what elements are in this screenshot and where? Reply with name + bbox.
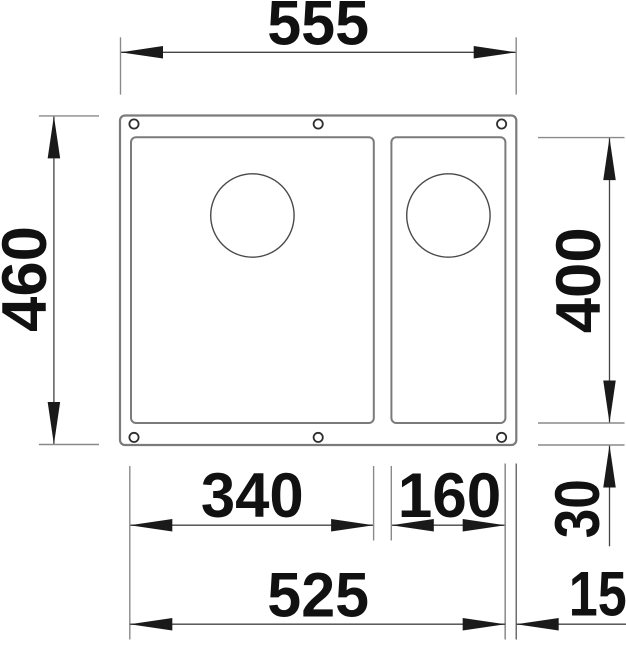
svg-text:460: 460 bbox=[0, 226, 60, 332]
svg-text:340: 340 bbox=[201, 461, 304, 531]
svg-text:15: 15 bbox=[569, 560, 626, 630]
svg-text:525: 525 bbox=[267, 560, 369, 630]
svg-text:400: 400 bbox=[544, 227, 614, 333]
svg-text:30: 30 bbox=[543, 479, 613, 538]
svg-text:160: 160 bbox=[398, 461, 502, 531]
svg-text:555: 555 bbox=[267, 0, 369, 58]
